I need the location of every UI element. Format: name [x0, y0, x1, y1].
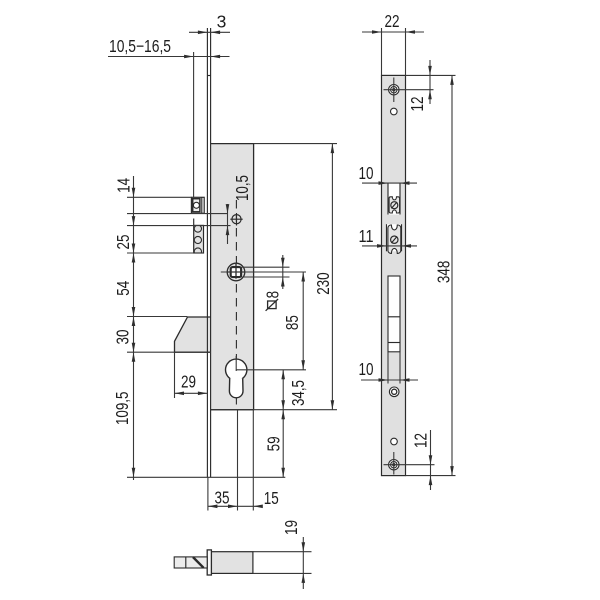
svg-text:12: 12: [407, 97, 427, 112]
svg-text:10: 10: [359, 163, 374, 183]
svg-text:59: 59: [264, 436, 284, 451]
svg-text:10,5: 10,5: [232, 175, 252, 201]
svg-text:8: 8: [263, 291, 283, 299]
svg-text:10: 10: [359, 359, 374, 379]
svg-text:10,5−16,5: 10,5−16,5: [109, 36, 171, 56]
svg-text:25: 25: [113, 235, 133, 250]
svg-text:230: 230: [313, 272, 333, 295]
svg-text:35: 35: [215, 488, 230, 508]
svg-text:30: 30: [113, 329, 133, 344]
svg-text:3: 3: [217, 12, 227, 32]
svg-text:15: 15: [264, 488, 279, 508]
svg-text:348: 348: [434, 261, 454, 283]
svg-text:85: 85: [282, 315, 302, 330]
svg-text:29: 29: [181, 371, 196, 391]
svg-text:14: 14: [114, 178, 134, 193]
svg-text:54: 54: [113, 281, 133, 296]
svg-text:34,5: 34,5: [288, 380, 308, 406]
svg-text:22: 22: [385, 11, 400, 31]
svg-text:11: 11: [359, 226, 374, 246]
svg-text:19: 19: [281, 520, 301, 535]
svg-text:109,5: 109,5: [112, 392, 132, 426]
svg-text:12: 12: [411, 433, 431, 448]
